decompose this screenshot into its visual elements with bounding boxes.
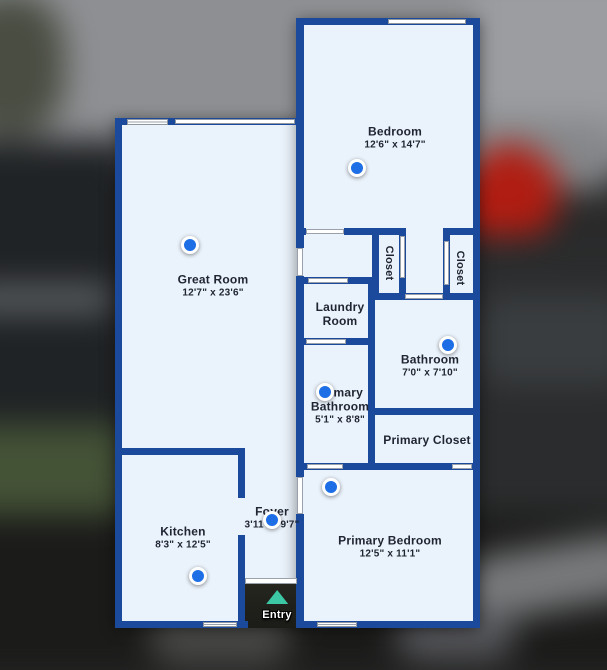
panorama-dot-primary-bathroom[interactable] xyxy=(316,383,334,401)
panorama-dot-foyer[interactable] xyxy=(263,511,281,529)
wall xyxy=(115,448,245,455)
floor-plan: Bedroom 12'6" x 14'7" Great Room 12'7" x… xyxy=(0,0,607,670)
window xyxy=(203,622,237,627)
panorama-dot-bedroom[interactable] xyxy=(348,159,366,177)
door-opening xyxy=(297,477,303,514)
door-opening xyxy=(306,339,346,344)
entry-marker[interactable]: Entry xyxy=(262,590,292,621)
wall xyxy=(238,535,245,628)
door-opening xyxy=(405,294,443,299)
panorama-dot-bathroom[interactable] xyxy=(439,336,457,354)
entry-arrow-icon xyxy=(266,590,288,604)
window xyxy=(175,119,295,124)
wall xyxy=(296,228,306,235)
door-opening xyxy=(444,241,449,285)
window xyxy=(317,622,357,627)
door-opening xyxy=(307,464,343,469)
door-opening xyxy=(308,278,348,283)
panorama-dot-kitchen[interactable] xyxy=(189,567,207,585)
door-opening xyxy=(297,248,303,276)
wall xyxy=(296,18,304,248)
door-opening xyxy=(400,236,405,278)
room-fill-left-wing xyxy=(115,118,303,628)
wall xyxy=(115,118,122,628)
wall xyxy=(296,514,304,628)
entry-label: Entry xyxy=(262,609,292,621)
wall xyxy=(368,408,480,415)
window xyxy=(127,119,168,125)
wall xyxy=(473,18,480,628)
door-opening xyxy=(306,229,344,234)
door-opening xyxy=(452,464,472,469)
wall xyxy=(368,277,375,470)
panorama-dot-primary-bedroom[interactable] xyxy=(322,478,340,496)
floor-plan-viewer: Bedroom 12'6" x 14'7" Great Room 12'7" x… xyxy=(0,0,607,670)
door-opening xyxy=(245,578,297,584)
wall xyxy=(238,448,245,498)
window xyxy=(388,19,466,24)
wall xyxy=(296,276,304,477)
room-fill-right-wing xyxy=(297,18,480,628)
panorama-dot-great-room[interactable] xyxy=(181,236,199,254)
